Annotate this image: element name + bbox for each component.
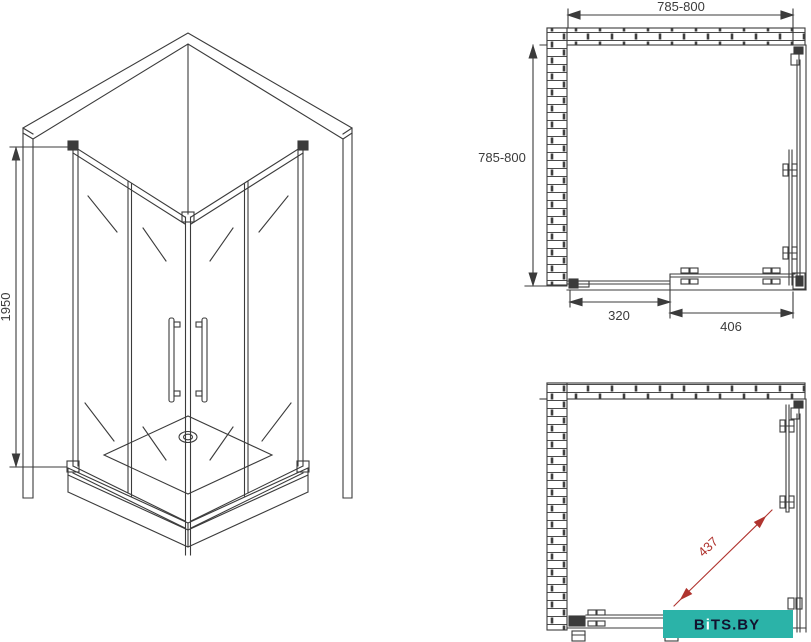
door-segment-dimension-label: 406 xyxy=(720,319,742,334)
plan-view: 785-800 785-800 320 406 xyxy=(478,0,806,334)
entry-right-door xyxy=(780,399,806,632)
drain-icon xyxy=(179,432,197,443)
entry-right-bracket-body xyxy=(791,408,799,419)
right-corner-bracket xyxy=(794,47,803,54)
bottom-left-bracket xyxy=(569,276,803,288)
entry-bottom-bracket xyxy=(569,616,585,626)
height-dimension: 1950 xyxy=(0,147,71,467)
entry-dimension-label: 437 xyxy=(695,534,721,560)
entry-right-door-lines xyxy=(780,399,806,632)
entry-dimension: 437 xyxy=(674,510,772,606)
plan-dimension-lines xyxy=(533,9,793,313)
reflection-marks xyxy=(85,196,291,460)
height-dimension-label-wrap: 1950 xyxy=(0,293,13,322)
right-bracket-body xyxy=(791,54,799,65)
entry-right-bracket xyxy=(794,401,803,408)
door-handles xyxy=(169,318,207,402)
shower-enclosure-drawing: 1950 xyxy=(0,0,811,642)
watermark: BiTS.BY xyxy=(663,610,793,638)
plan-right-glass xyxy=(783,45,806,290)
plan-bottom-glass xyxy=(567,268,806,318)
height-dimension-label: 1950 xyxy=(0,293,13,322)
plan-dimension-arrows xyxy=(529,11,793,317)
right-glass-lines xyxy=(783,45,806,290)
isometric-view: 1950 xyxy=(0,33,352,555)
width-dimension-label: 785-800 xyxy=(657,0,705,14)
mounting-foot-left xyxy=(572,631,585,641)
brick-wall-left xyxy=(547,28,567,285)
fixed-segment-dimension-label: 320 xyxy=(608,308,630,323)
iso-glass-reflections xyxy=(85,196,291,460)
technical-drawing-page: 1950 xyxy=(0,0,811,642)
plan-walls xyxy=(525,28,805,286)
height-dimension-lines xyxy=(10,147,71,467)
entry-view: 437 BiTS.BY xyxy=(540,383,806,641)
bottom-glass-lines xyxy=(567,274,806,318)
drawing-root: 1950 xyxy=(0,0,806,641)
brick-wall-left-2 xyxy=(547,383,567,630)
brick-wall-top xyxy=(547,28,805,45)
depth-dimension-label: 785-800 xyxy=(478,150,526,165)
door-handle-right xyxy=(196,318,207,402)
entry-walls xyxy=(540,383,805,630)
watermark-text: BiTS.BY xyxy=(694,617,760,634)
door-handle-left xyxy=(169,318,180,402)
brick-wall-top-2 xyxy=(547,383,805,399)
